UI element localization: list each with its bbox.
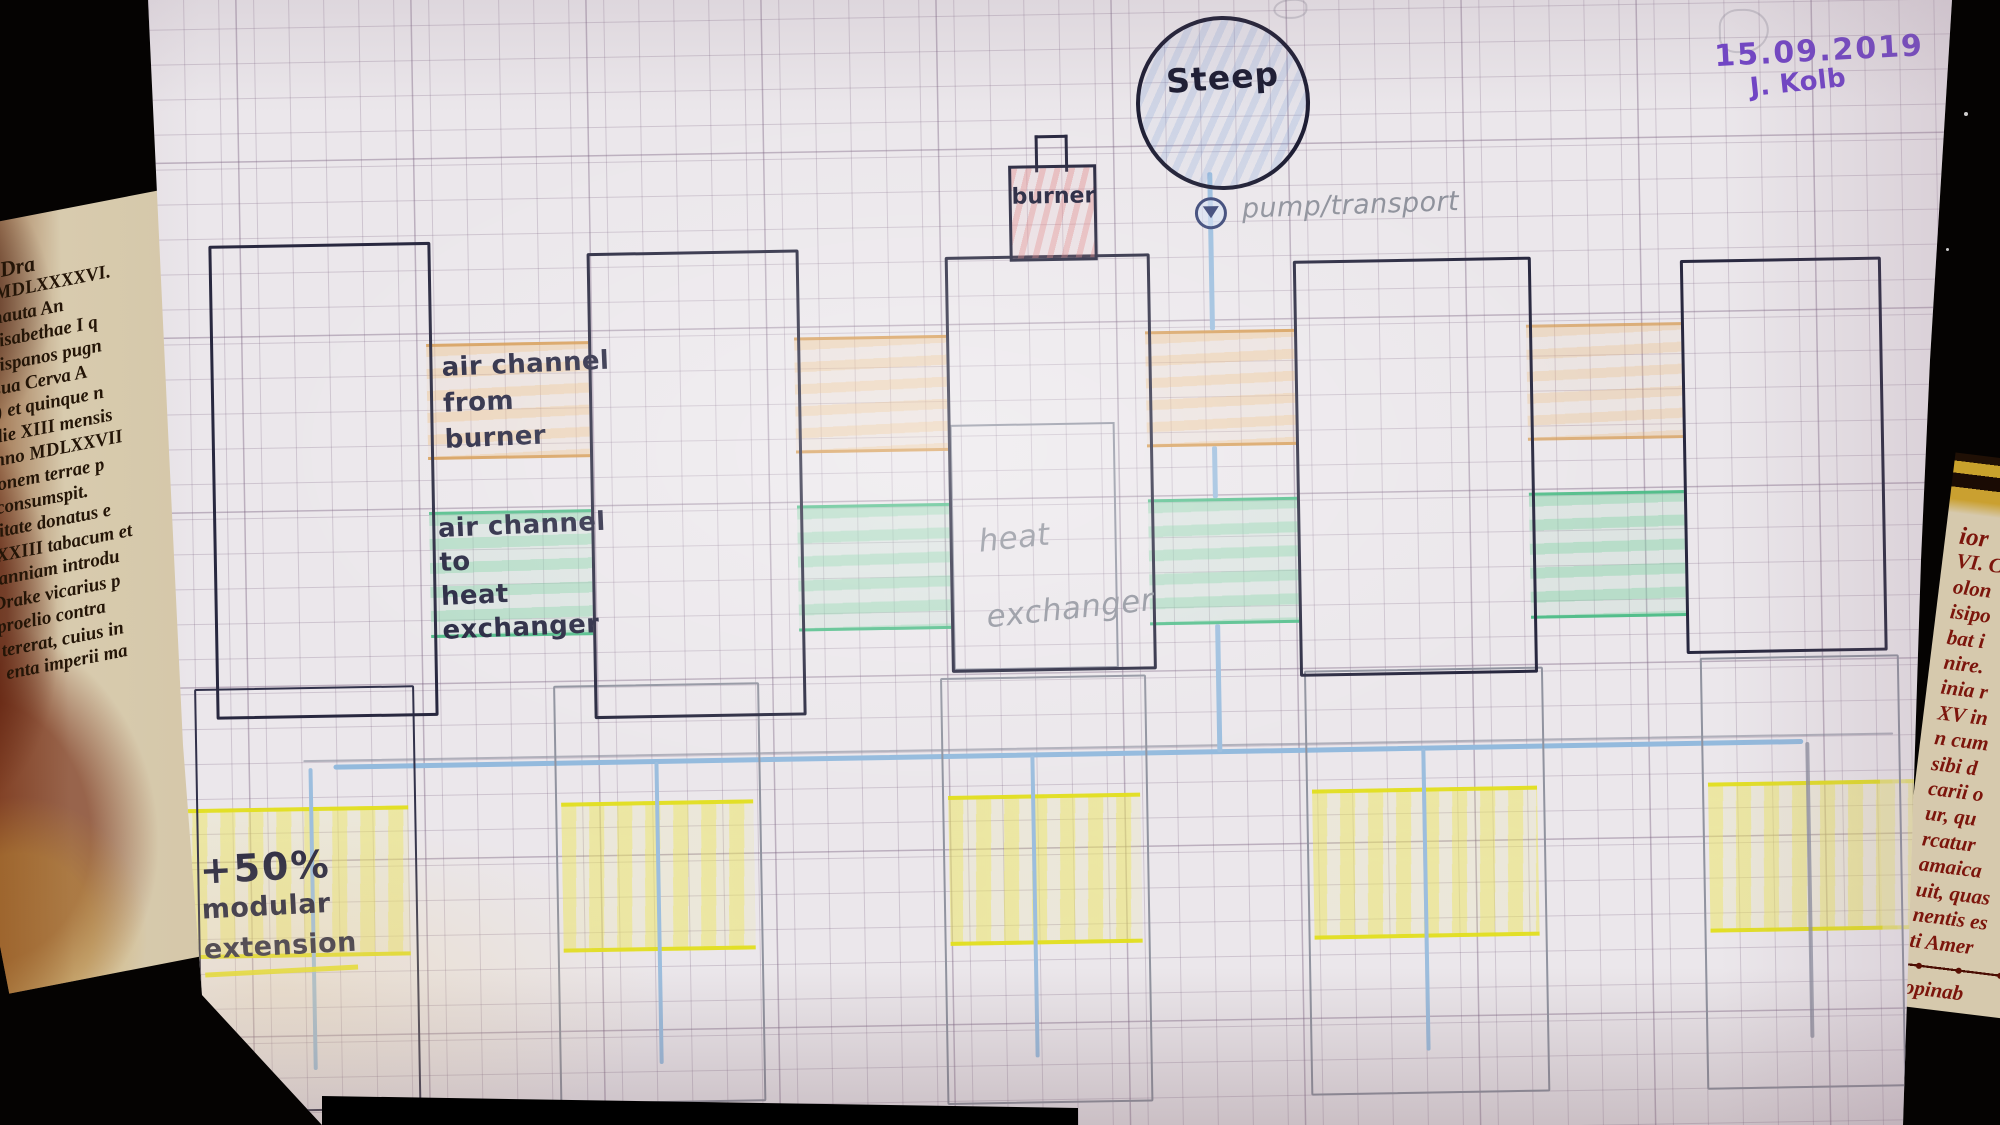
air-channel-to-heat-exchanger-label: air channel to heat exchanger	[437, 505, 611, 648]
graph-paper-sheet: Steep burner pump/transport air channel …	[0, 0, 2000, 1125]
tower-module-2	[587, 249, 807, 719]
bottom-module-4	[1304, 667, 1550, 1096]
burner: burner	[1008, 164, 1098, 262]
air-from-burner-band-segment	[1526, 322, 1683, 441]
label-line: air channel	[441, 343, 610, 386]
dust-speck	[1964, 112, 1968, 116]
bottom-module-3	[940, 674, 1153, 1105]
tower-module-5	[1680, 257, 1888, 654]
bottom-module-2	[553, 682, 766, 1105]
air-to-heat-exchanger-band-segment	[797, 503, 951, 632]
air-channel-from-burner-label: air channel from burner	[441, 343, 613, 458]
air-to-heat-exchanger-band-segment	[1148, 497, 1299, 626]
heat-exchanger-label: heat exchanger	[975, 486, 1158, 655]
modular-extension-label: +50% modular extension	[199, 843, 358, 978]
pencil-doodle	[1273, 0, 1307, 19]
bottom-module-5	[1700, 654, 1907, 1089]
dust-speck	[1946, 248, 1949, 251]
label-line: burner	[444, 415, 613, 458]
steep-label: Steep	[1138, 52, 1306, 102]
burner-label: burner	[1011, 183, 1093, 209]
air-to-heat-exchanger-band-segment	[1529, 490, 1686, 619]
label-line: extension	[203, 923, 358, 978]
air-from-burner-band-segment	[794, 335, 948, 454]
photographed-sketch: scus de Dra MDXL-MDLXXXXVI. us iste naut…	[0, 0, 2000, 1125]
steep-downpipe-segment	[1212, 446, 1218, 498]
tower-module-1	[208, 242, 438, 720]
label-line: +50%	[199, 843, 354, 891]
air-from-burner-band-segment	[1145, 329, 1296, 448]
pump-triangle-icon	[1203, 206, 1219, 218]
tower-module-4	[1293, 257, 1538, 677]
